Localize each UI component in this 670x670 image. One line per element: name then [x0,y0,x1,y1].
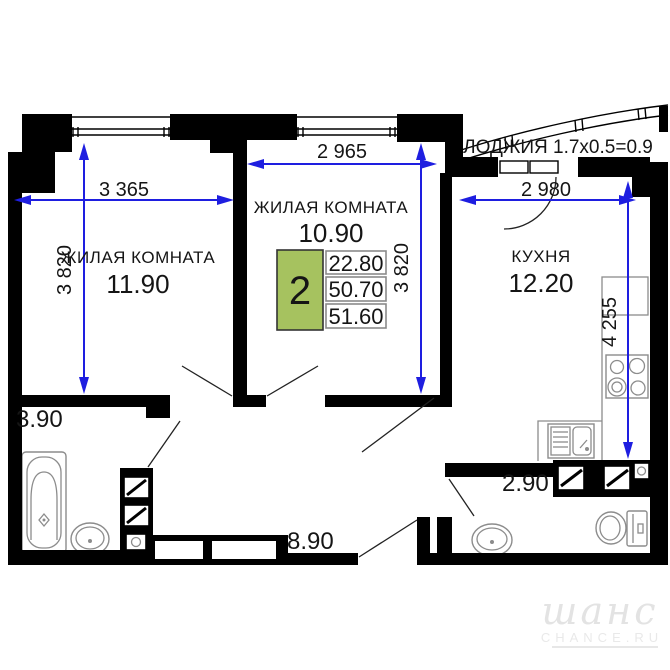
dim-room2-height: 3 820 [391,243,413,293]
rooms-count: 2 [289,269,311,313]
kitchen-area-label: 12.20 [508,268,573,298]
door-swing-entrance [359,520,417,557]
window-room1 [72,114,170,140]
dim-kitchen-height: 4 255 [599,297,621,347]
room1-name-label: ЖИЛАЯ КОМНАТА [61,248,216,267]
info-value-top: 22.80 [328,251,383,276]
dim-kitchen-width: 2 980 [521,179,571,201]
wc-area-label: 2.90 [502,470,549,497]
room2-name-label: ЖИЛАЯ КОМНАТА [254,198,409,217]
window-room2 [297,114,397,140]
door-swing-wc [449,479,474,516]
wall-cutouts [155,463,649,559]
apartment-info-box: 2 22.80 50.70 51.60 [277,250,386,330]
dim-room1-width: 3 365 [99,179,149,201]
bathtub [22,452,66,553]
watermark-caption: CHANCE.RU [541,630,663,645]
loggia-label: ЛОДЖИЯ 1.7x0.5=0.9 [463,137,653,158]
dimension-kitchen-height: 4 255 [599,181,633,459]
room1-area-label: 11.90 [106,269,169,299]
dimension-room2-height: 3 820 [391,143,426,394]
watermark-script: шанс [542,589,659,633]
kitchen-name-label: КУХНЯ [511,247,570,266]
dimension-room1-height: 3 820 [54,143,89,394]
door-swing-room2 [267,366,318,396]
kitchen-sink [548,424,594,458]
toilet [596,511,647,546]
floor-plan: 3 365 3 820 2 965 3 820 2 980 4 255 ЖИЛА… [0,0,670,670]
bathroom-area-label: 3.90 [16,406,63,433]
walls [8,106,668,565]
hallway-area-label: 8.90 [287,528,334,555]
wc-sink [472,524,512,556]
dimension-room2-width: 2 965 [247,141,437,169]
watermark: шанс CHANCE.RU [541,589,663,647]
dim-room2-width: 2 965 [317,141,367,163]
dimension-kitchen-width: 2 980 [459,179,636,205]
room2-area-label: 10.90 [298,218,363,248]
info-value-bottom: 51.60 [328,304,383,329]
door-swing-room1 [182,366,232,396]
door-swing-bathroom [148,421,180,467]
info-value-middle: 50.70 [328,277,383,302]
